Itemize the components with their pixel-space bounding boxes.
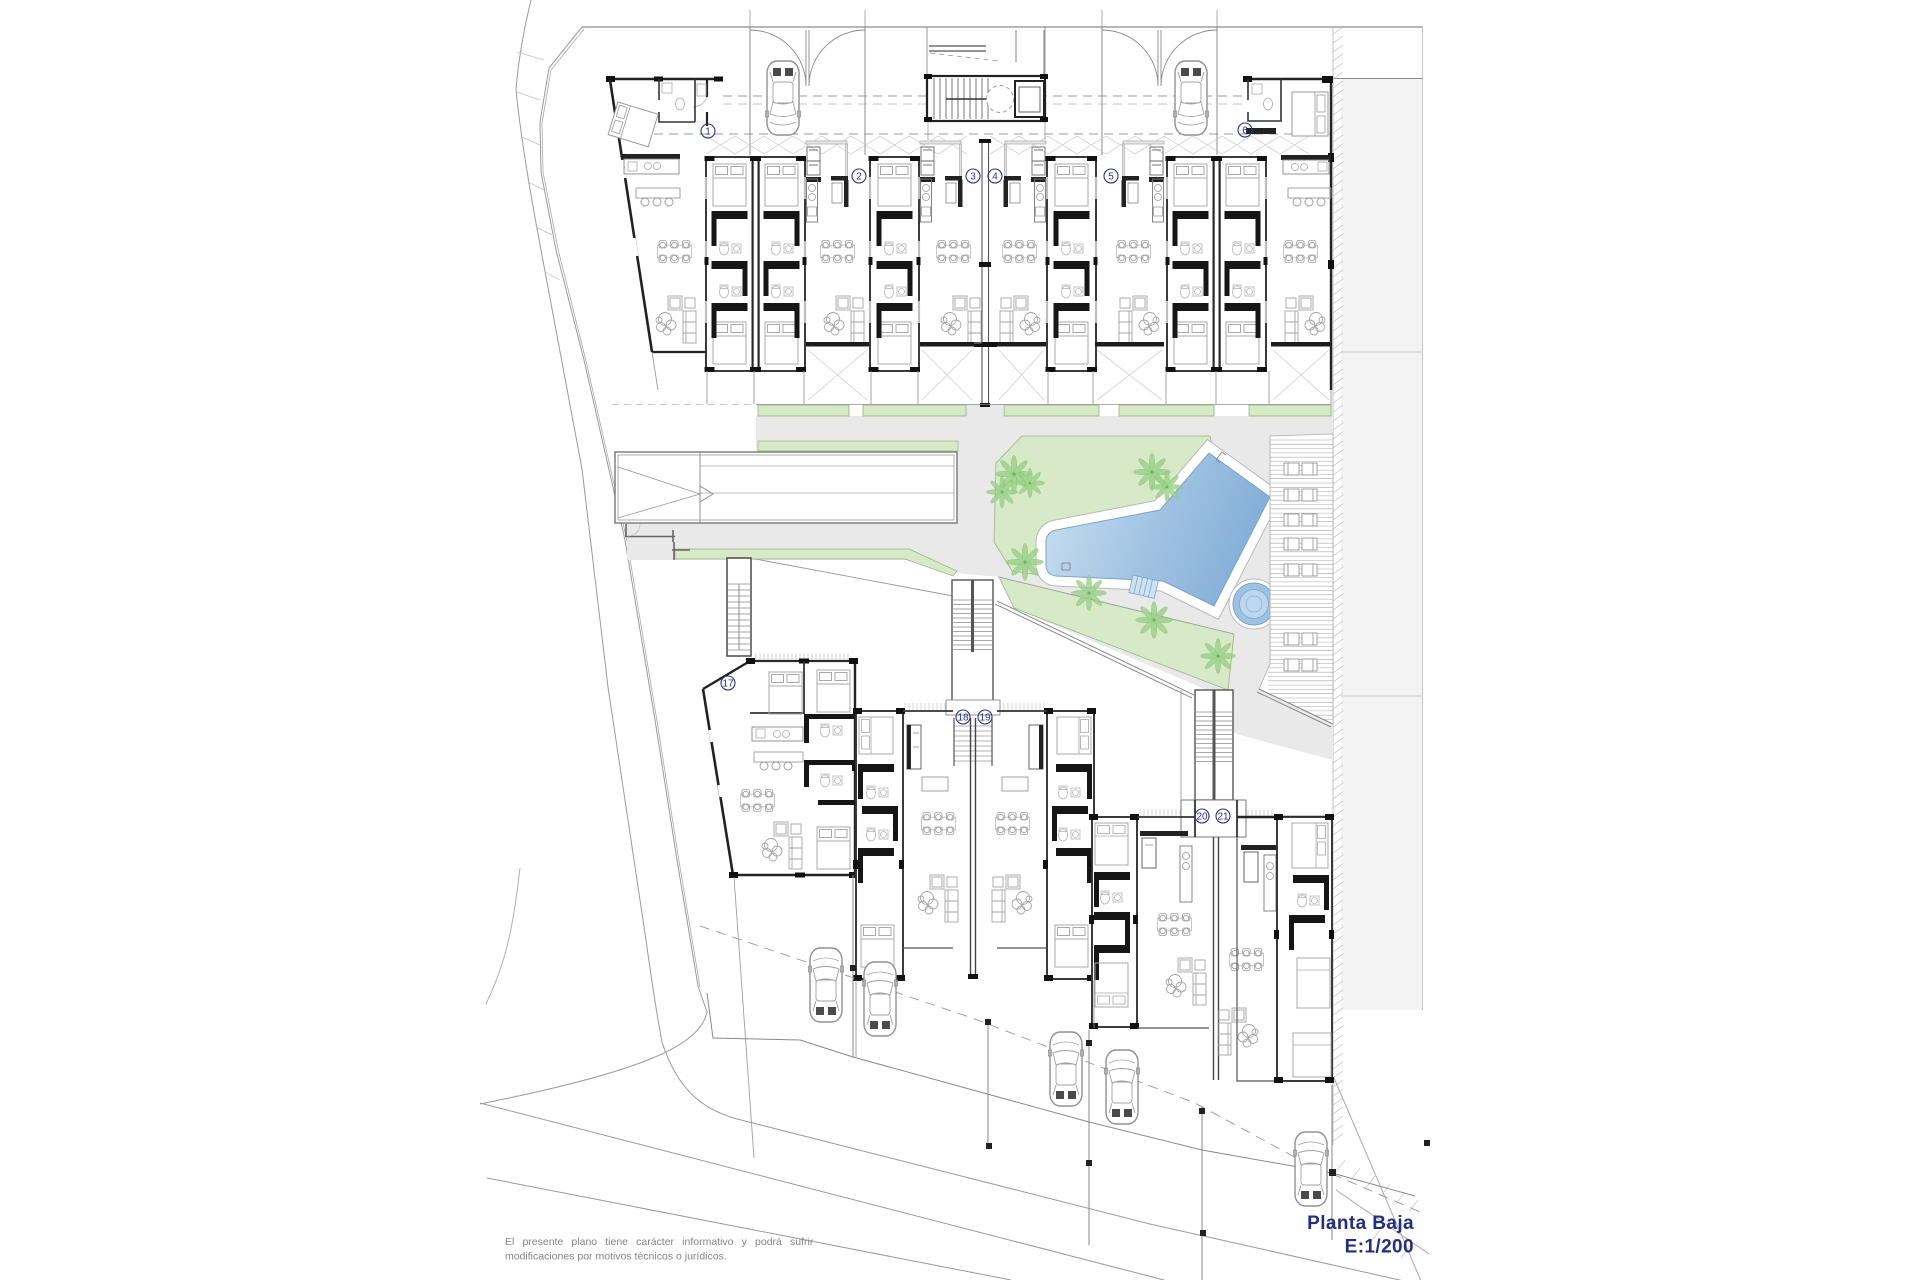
svg-text:1: 1 xyxy=(705,127,711,138)
svg-text:Planta Baja: Planta Baja xyxy=(1307,1213,1414,1234)
svg-text:21: 21 xyxy=(1217,812,1229,823)
svg-text:20: 20 xyxy=(1196,812,1208,823)
svg-text:5: 5 xyxy=(1108,172,1114,183)
svg-text:2: 2 xyxy=(856,172,862,183)
svg-text:E:1/200: E:1/200 xyxy=(1345,1237,1414,1258)
svg-text:6: 6 xyxy=(1242,126,1248,137)
svg-text:3: 3 xyxy=(970,172,976,183)
svg-text:17: 17 xyxy=(722,679,734,690)
svg-text:19: 19 xyxy=(979,713,991,724)
svg-text:4: 4 xyxy=(992,172,998,183)
svg-text:18: 18 xyxy=(957,713,969,724)
svg-text:El presente plano tiene caráct: El presente plano tiene carácter informa… xyxy=(505,1236,814,1248)
svg-text:modificaciones por motivos téc: modificaciones por motivos técnicos o ju… xyxy=(505,1251,727,1263)
